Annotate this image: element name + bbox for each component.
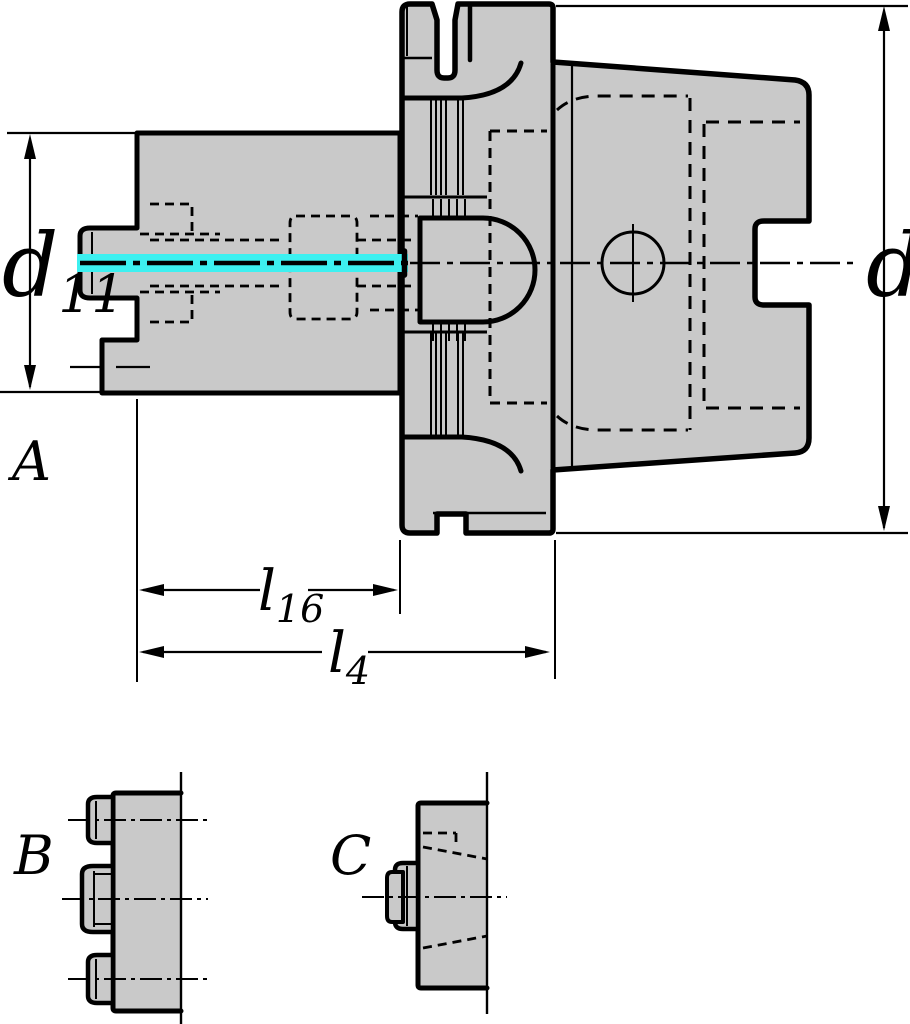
arrowhead-up [24,134,36,159]
dim-label-d1: d1 [866,214,910,325]
dim-label-l16: l16 [258,559,324,631]
view-a-label: A [7,430,51,493]
arrowhead-up [878,6,890,31]
technical-drawing-page: A d11 d1 l16 l4 [0,0,910,1024]
arrowhead-down [878,506,890,531]
main-view-a: A [7,4,858,533]
arrowhead-right [373,584,398,596]
dimension-l4: l4 [139,540,555,693]
dim-label-l4: l4 [328,621,370,693]
arrowhead-right [525,646,550,658]
view-c-label: C [330,824,371,887]
arrowhead-down [24,365,36,390]
arrowhead-left [139,646,164,658]
dimension-l16: l16 [137,399,400,682]
technical-drawing-canvas: A d11 d1 l16 l4 [0,0,910,1024]
detail-view-b: B [13,772,208,1024]
drive-boss [420,218,535,322]
view-b-label: B [13,824,54,887]
arrowhead-left [139,584,164,596]
detail-view-c: C [330,772,507,1014]
